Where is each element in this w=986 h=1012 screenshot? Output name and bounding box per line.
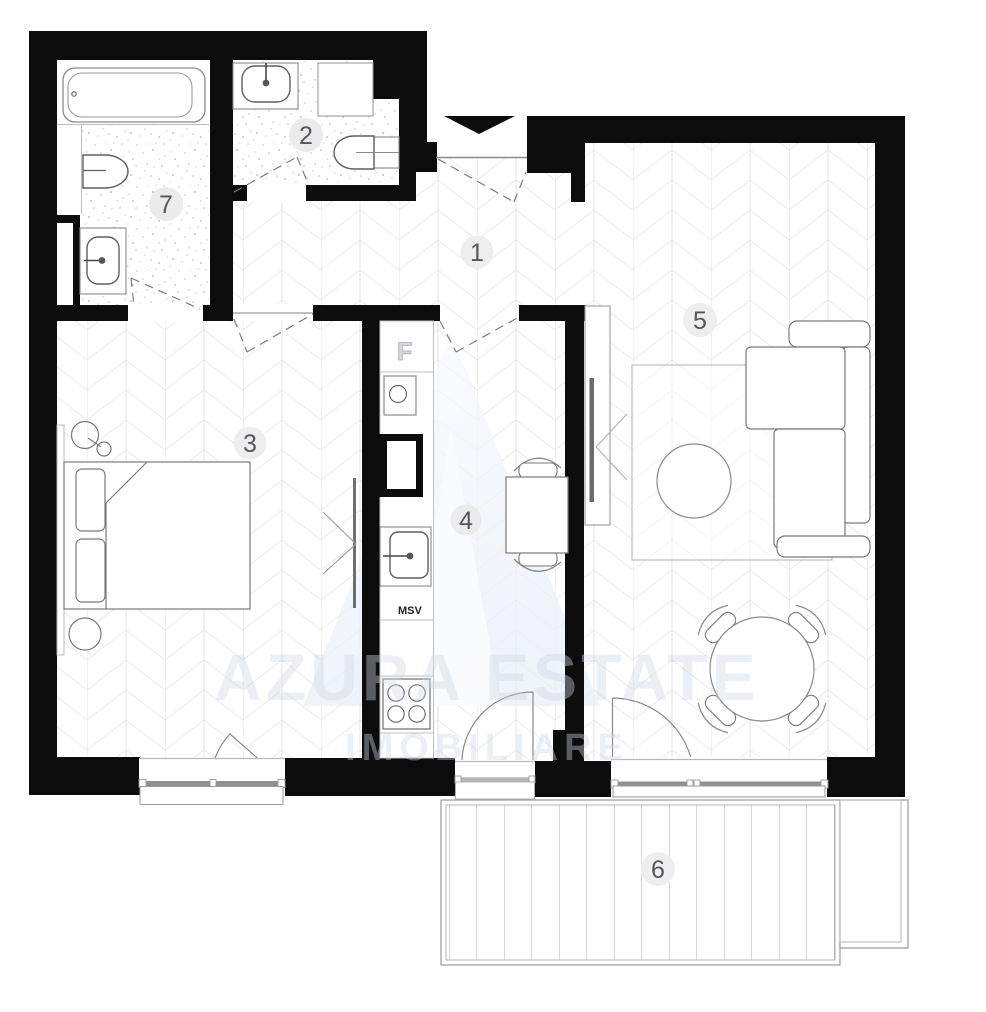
- svg-text:6: 6: [651, 856, 665, 884]
- svg-text:1: 1: [470, 239, 484, 267]
- svg-text:2: 2: [299, 122, 313, 150]
- svg-text:IMOBILIARE: IMOBILIARE: [345, 727, 629, 769]
- svg-text:F: F: [397, 338, 412, 366]
- svg-text:7: 7: [159, 191, 173, 219]
- svg-text:5: 5: [693, 307, 707, 335]
- svg-text:4: 4: [459, 507, 473, 535]
- svg-text:MSV: MSV: [398, 605, 423, 617]
- svg-text:AZURA ESTATE: AZURA ESTATE: [214, 640, 759, 714]
- svg-text:3: 3: [243, 430, 257, 458]
